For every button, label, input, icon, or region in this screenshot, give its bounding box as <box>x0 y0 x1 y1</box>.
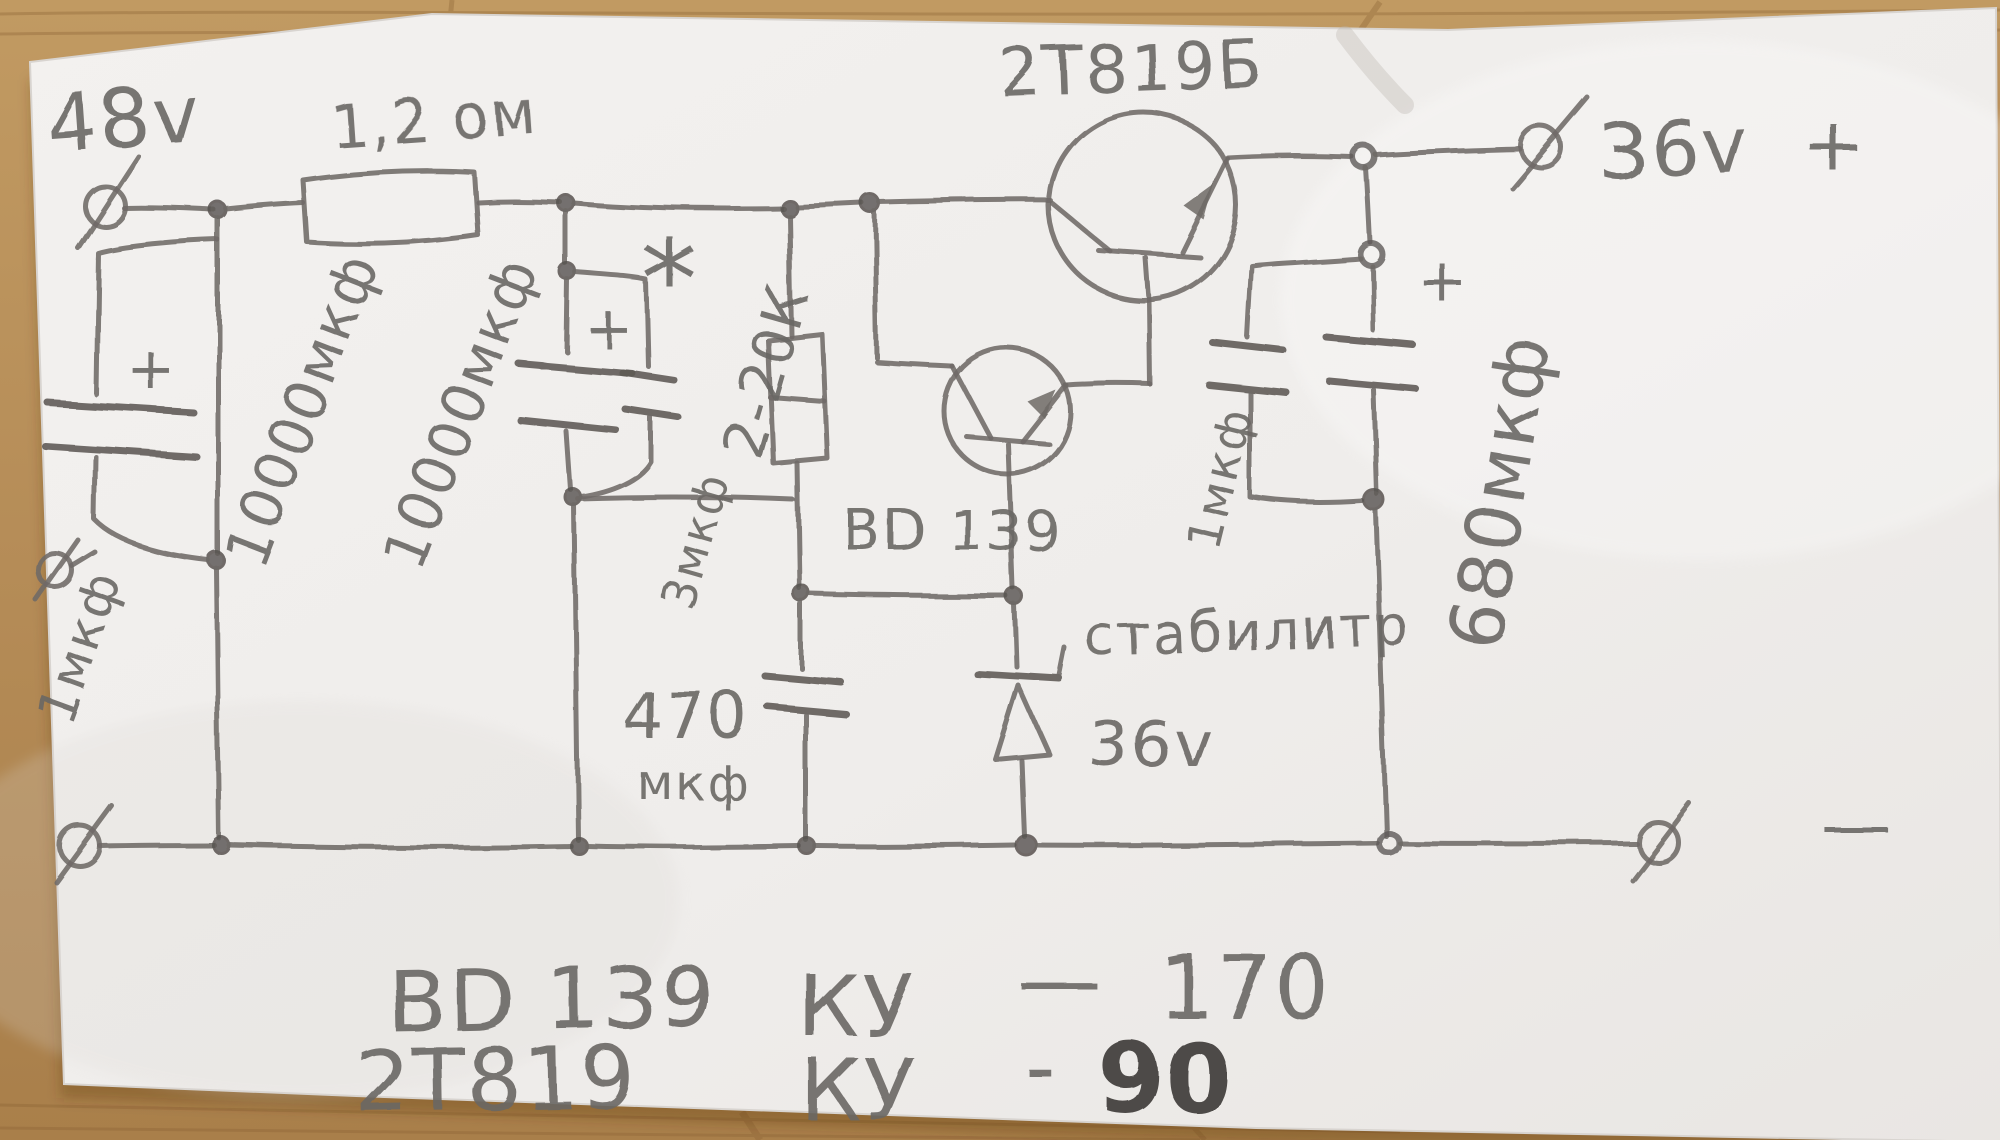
capacitor-c1-plus: + <box>126 334 177 402</box>
note1-dash: — <box>1018 932 1104 1030</box>
output-plus-label: + <box>1802 102 1866 188</box>
junction-dot <box>1364 490 1384 510</box>
zener-name-label: стабилитр <box>1083 594 1412 670</box>
junction-dot <box>1016 835 1036 855</box>
transistor-2t819-label: 2Т819Б <box>998 26 1266 112</box>
note2-value: 90 <box>1098 1023 1232 1135</box>
note2-dash: - <box>1025 1018 1057 1116</box>
output-voltage-label: 36v <box>1596 101 1752 199</box>
gain-notes: BD 139 КУ — 170 2Т819 КУ - 90 <box>355 932 1332 1140</box>
junction-dot <box>862 195 880 213</box>
note2-param: КУ <box>800 1041 917 1140</box>
capacitor-680uf-plus: + <box>1418 247 1470 317</box>
zener-cathode-bar <box>976 673 1059 678</box>
schematic-canvas: 48v 1,2 ом + 1мкф 10000мкф 10000мкф + 3м… <box>0 0 2000 1140</box>
resistor-r1-value: 1,2 ом <box>328 79 541 163</box>
capacitor-470uf-unit: мкф <box>638 756 750 812</box>
capacitor-470uf-value: 470 <box>622 680 750 754</box>
capacitor-c3-plus: + <box>584 294 635 362</box>
photo-of-hand-drawn-schematic: 48v 1,2 ом + 1мкф 10000мкф 10000мкф + 3м… <box>0 0 2000 1140</box>
output-minus-label: — <box>1822 785 1894 867</box>
input-voltage-label: 48v <box>43 67 204 171</box>
transistor-bd139-label: BD 139 <box>843 499 1061 564</box>
note2-part: 2Т819 <box>355 1028 638 1133</box>
zener-voltage-label: 36v <box>1088 708 1213 782</box>
asterisk-mark: * <box>642 216 699 344</box>
